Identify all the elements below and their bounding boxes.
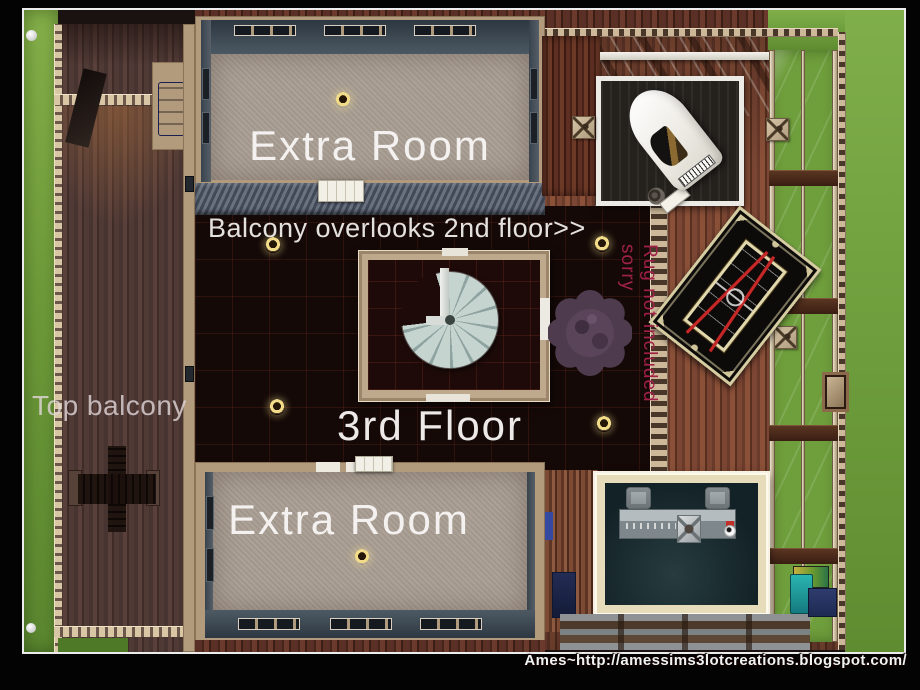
play-bar-horizontal — [78, 474, 156, 504]
grass-left-strip — [24, 10, 58, 652]
white-bench-top[interactable] — [318, 180, 364, 202]
window-bottom-3 — [420, 618, 482, 630]
wall-sconce-lower[interactable] — [774, 326, 797, 349]
picture-frame-art — [827, 377, 844, 407]
window-bottom-2 — [330, 618, 392, 630]
white-bench-bottom[interactable] — [355, 456, 393, 472]
railing-post-cap-bottom — [26, 623, 36, 633]
window-top-3 — [414, 25, 476, 36]
play-structure[interactable] — [68, 446, 160, 532]
staircase-center-pole — [445, 315, 455, 325]
lower-roof-slats — [560, 614, 810, 650]
glass-roof-beam-3 — [769, 425, 838, 441]
window-east-1 — [530, 68, 538, 100]
bar-stool-1[interactable] — [626, 487, 651, 509]
deck-house-wall — [183, 24, 195, 652]
stairwell-door-top — [442, 248, 468, 256]
wall-sconce-left[interactable] — [572, 116, 595, 139]
balcony-railing-bottom — [54, 626, 195, 637]
window-top-2 — [324, 25, 386, 36]
top-balcony-label: Top balcony — [32, 390, 187, 422]
roof-trim-right — [838, 32, 846, 650]
extra-room-bottom-label: Extra Room — [174, 496, 524, 544]
bar-stool-2[interactable] — [705, 487, 730, 509]
balcony-edge-corrugated-left — [195, 183, 545, 215]
wall-lamp-dark-2[interactable] — [594, 236, 610, 252]
wall-lamp-dark-4[interactable] — [596, 416, 612, 432]
blue-wall-item — [545, 512, 553, 540]
foosball-rod-2 — [709, 256, 775, 352]
wall-picture-frame[interactable] — [822, 372, 849, 412]
window-bottom-1 — [238, 618, 300, 630]
window-top-1 — [234, 25, 296, 36]
wall-vent-1 — [185, 176, 194, 192]
wall-sconce-right[interactable] — [766, 118, 789, 141]
deck-bottom-grass — [58, 638, 128, 652]
piano-keys — [678, 154, 716, 187]
floorplan-scene: Extra Room Balcony overlooks 2nd floor>>… — [22, 8, 906, 654]
window-west-1 — [202, 68, 210, 100]
balcony-railing-left — [54, 24, 62, 652]
grass-right-strip — [845, 10, 906, 652]
navy-crate[interactable] — [808, 588, 837, 617]
wall-vent-2 — [185, 366, 194, 382]
balcony-overlook-note: Balcony overlooks 2nd floor>> — [208, 213, 586, 244]
stairwell-door-bottom — [426, 394, 470, 402]
extra-room-bottom-east-wall — [527, 472, 535, 612]
blue-sofa[interactable] — [158, 82, 185, 136]
ceiling-lamp-top-room[interactable] — [335, 92, 351, 108]
door-gap-bottom-room-1 — [316, 462, 340, 472]
dark-blue-cabinet[interactable] — [552, 572, 576, 618]
extra-room-top-label: Extra Room — [195, 122, 545, 170]
screenshot-canvas: Extra Room Balcony overlooks 2nd floor>>… — [0, 0, 920, 690]
railing-post-cap-top — [26, 30, 37, 41]
watermark-url: Ames~http://amessims3lotcreations.blogsp… — [524, 652, 907, 669]
soccer-ball[interactable] — [724, 525, 736, 537]
piano-lid-opening — [645, 125, 689, 171]
third-floor-label: 3rd Floor — [270, 402, 590, 450]
bar-sink[interactable] — [677, 515, 701, 543]
glass-roof-beam-4 — [769, 548, 838, 564]
window-bottom-west-2 — [206, 548, 214, 582]
bar-bottles-row — [626, 523, 676, 529]
ceiling-lamp-bottom-room[interactable] — [354, 549, 370, 565]
bar-room — [595, 473, 768, 615]
glass-roof-beam-1 — [769, 170, 838, 186]
rug-disclaimer-note: Rug not included sorry — [616, 244, 660, 426]
bottom-roof-edge — [195, 640, 545, 652]
